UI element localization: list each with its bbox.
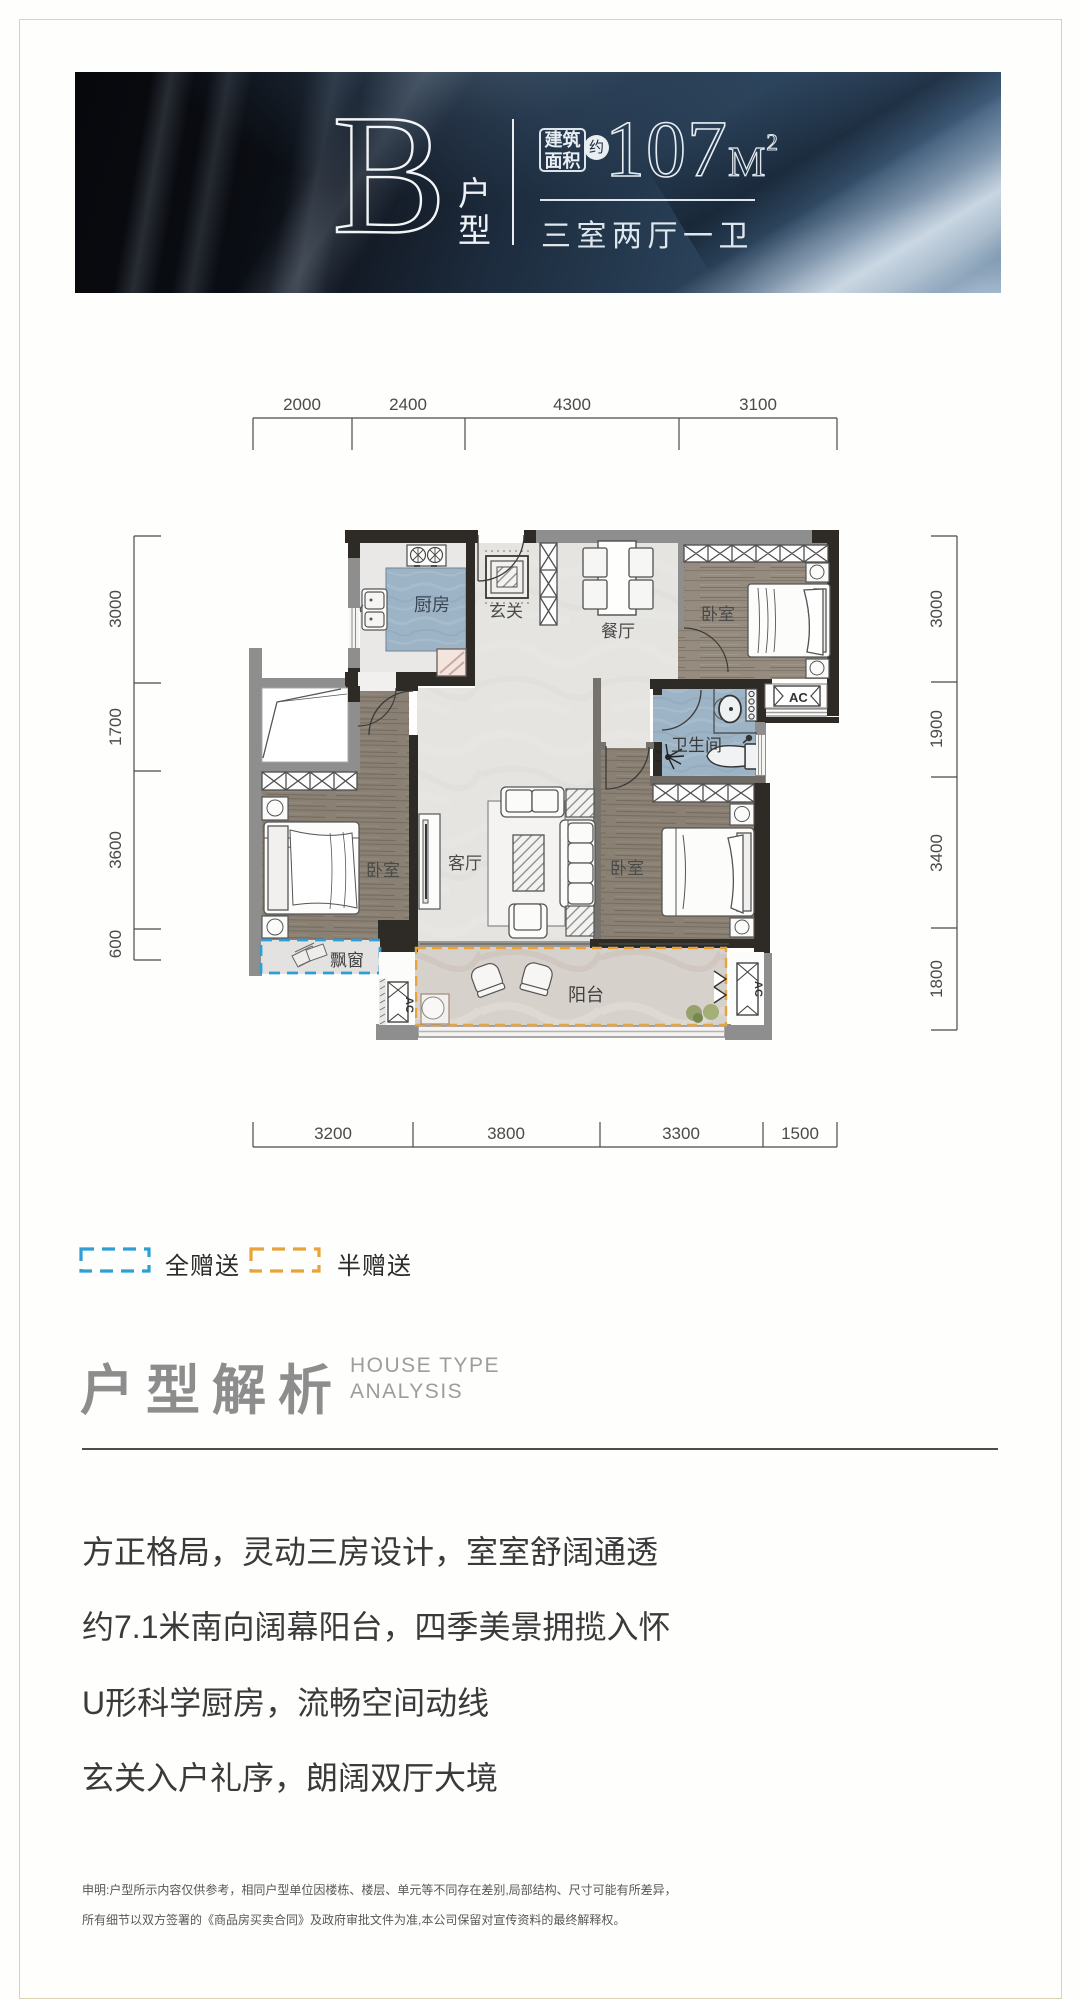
svg-text:3200: 3200 [314, 1124, 352, 1143]
svg-text:3800: 3800 [487, 1124, 525, 1143]
svg-text:AC: AC [789, 690, 808, 705]
svg-text:3100: 3100 [739, 395, 777, 414]
svg-text:厨房: 厨房 [414, 595, 450, 615]
svg-text:3300: 3300 [662, 1124, 700, 1143]
svg-text:卧室: 卧室 [366, 861, 400, 880]
svg-text:3600: 3600 [106, 831, 125, 869]
svg-text:卧室: 卧室 [610, 859, 644, 878]
svg-text:客厅: 客厅 [448, 854, 482, 873]
svg-text:阳台: 阳台 [568, 985, 604, 1005]
svg-text:3000: 3000 [927, 590, 946, 628]
svg-text:2400: 2400 [389, 395, 427, 414]
svg-text:AC: AC [403, 997, 415, 1013]
svg-text:600: 600 [106, 930, 125, 958]
svg-text:卫生间: 卫生间 [671, 736, 722, 755]
svg-text:4300: 4300 [553, 395, 591, 414]
svg-text:AC: AC [752, 981, 764, 997]
svg-text:飘窗: 飘窗 [330, 951, 364, 970]
svg-text:餐厅: 餐厅 [601, 622, 635, 641]
svg-text:卧室: 卧室 [701, 605, 735, 624]
svg-text:3000: 3000 [106, 590, 125, 628]
svg-text:1900: 1900 [927, 710, 946, 748]
svg-text:1500: 1500 [781, 1124, 819, 1143]
svg-text:1800: 1800 [927, 960, 946, 998]
svg-text:3400: 3400 [927, 834, 946, 872]
svg-text:玄关: 玄关 [489, 602, 523, 621]
svg-text:2000: 2000 [283, 395, 321, 414]
svg-text:1700: 1700 [106, 708, 125, 746]
